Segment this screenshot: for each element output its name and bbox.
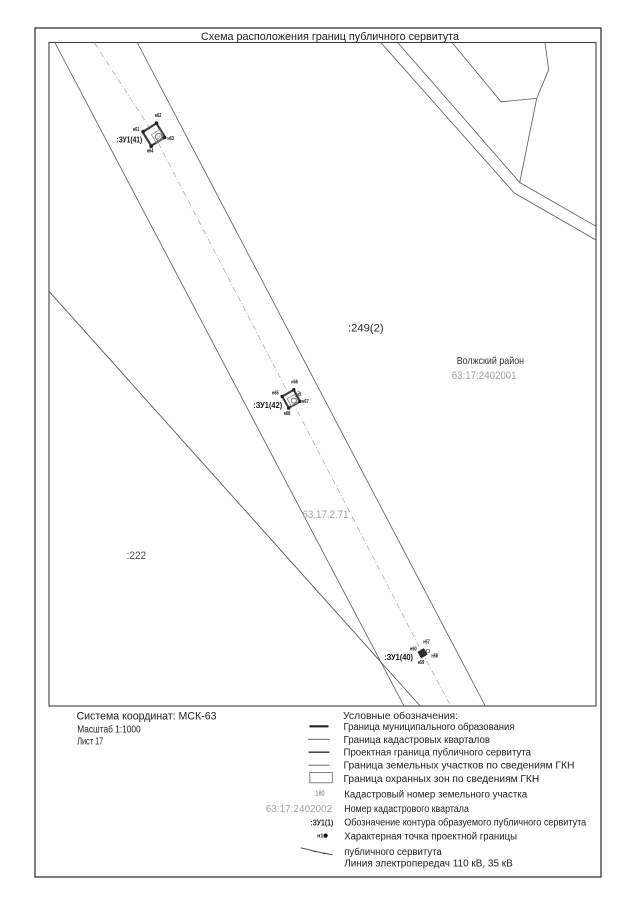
svg-text:Граница земельных участков по: Граница земельных участков по сведениям … bbox=[344, 760, 575, 771]
svg-text:Характерная точка проектной гр: Характерная точка проектной границы bbox=[344, 832, 517, 843]
svg-text:Граница кадастровых кварталов: Граница кадастровых кварталов bbox=[344, 735, 491, 746]
svg-text:н66: н66 bbox=[291, 380, 298, 386]
svg-text::ЗУ1(1): :ЗУ1(1) bbox=[310, 819, 333, 828]
svg-text::249(2): :249(2) bbox=[348, 323, 384, 335]
svg-text:н60: н60 bbox=[410, 647, 417, 653]
svg-text:н61: н61 bbox=[133, 127, 140, 133]
svg-text::ЗУ1(42): :ЗУ1(42) bbox=[253, 401, 282, 410]
svg-text::180: :180 bbox=[314, 790, 325, 797]
svg-text::ЗУ1(40): :ЗУ1(40) bbox=[384, 653, 413, 662]
svg-text:Схема расположения границ публ: Схема расположения границ публичного сер… bbox=[201, 31, 460, 43]
svg-text:Условные обозначения:: Условные обозначения: bbox=[343, 710, 458, 722]
svg-text:н59: н59 bbox=[418, 660, 425, 666]
svg-text:Линия электропередач 110 кВ, 3: Линия электропередач 110 кВ, 35 кВ bbox=[344, 859, 513, 870]
svg-text:н65: н65 bbox=[272, 390, 279, 396]
svg-text:н62: н62 bbox=[155, 113, 162, 119]
svg-text:Граница охранных зон по сведен: Граница охранных зон по сведениям ГКН bbox=[344, 774, 540, 785]
svg-text:н64: н64 bbox=[147, 148, 154, 154]
svg-text:Волжский район: Волжский район bbox=[457, 355, 525, 367]
svg-text:Проектная граница публичного с: Проектная граница публичного сервитута bbox=[344, 747, 532, 759]
svg-text:н1: н1 bbox=[317, 833, 323, 839]
svg-text:18: 18 bbox=[157, 135, 163, 140]
svg-text:Обозначение контура образуемог: Обозначение контура образуемого публично… bbox=[344, 817, 586, 829]
svg-text:63:17:2402002: 63:17:2402002 bbox=[266, 804, 333, 815]
svg-text:63:17:2402001: 63:17:2402001 bbox=[452, 370, 517, 382]
svg-text:публичного сервитута: публичного сервитута bbox=[344, 846, 442, 858]
svg-text::222: :222 bbox=[127, 550, 147, 562]
svg-text:Система координат: МСК-63: Система координат: МСК-63 bbox=[77, 711, 217, 723]
svg-text:н68: н68 bbox=[284, 411, 291, 417]
svg-text:Кадастровый номер земельного у: Кадастровый номер земельного участка bbox=[344, 790, 527, 801]
svg-text:Номер кадастрового квартала: Номер кадастрового квартала bbox=[344, 804, 469, 815]
svg-text:н63: н63 bbox=[167, 136, 174, 142]
svg-text:Лист 17: Лист 17 bbox=[77, 737, 103, 748]
svg-text:63.17.2.71: 63.17.2.71 bbox=[303, 509, 349, 521]
svg-text:н57: н57 bbox=[423, 640, 430, 646]
svg-text:н67: н67 bbox=[302, 399, 309, 405]
svg-text::ЗУ1(41): :ЗУ1(41) bbox=[116, 136, 142, 145]
svg-text:н58: н58 bbox=[431, 654, 438, 660]
svg-text:Масштаб 1:1000: Масштаб 1:1000 bbox=[77, 723, 141, 735]
svg-text:Граница муниципального образов: Граница муниципального образования bbox=[344, 721, 515, 733]
